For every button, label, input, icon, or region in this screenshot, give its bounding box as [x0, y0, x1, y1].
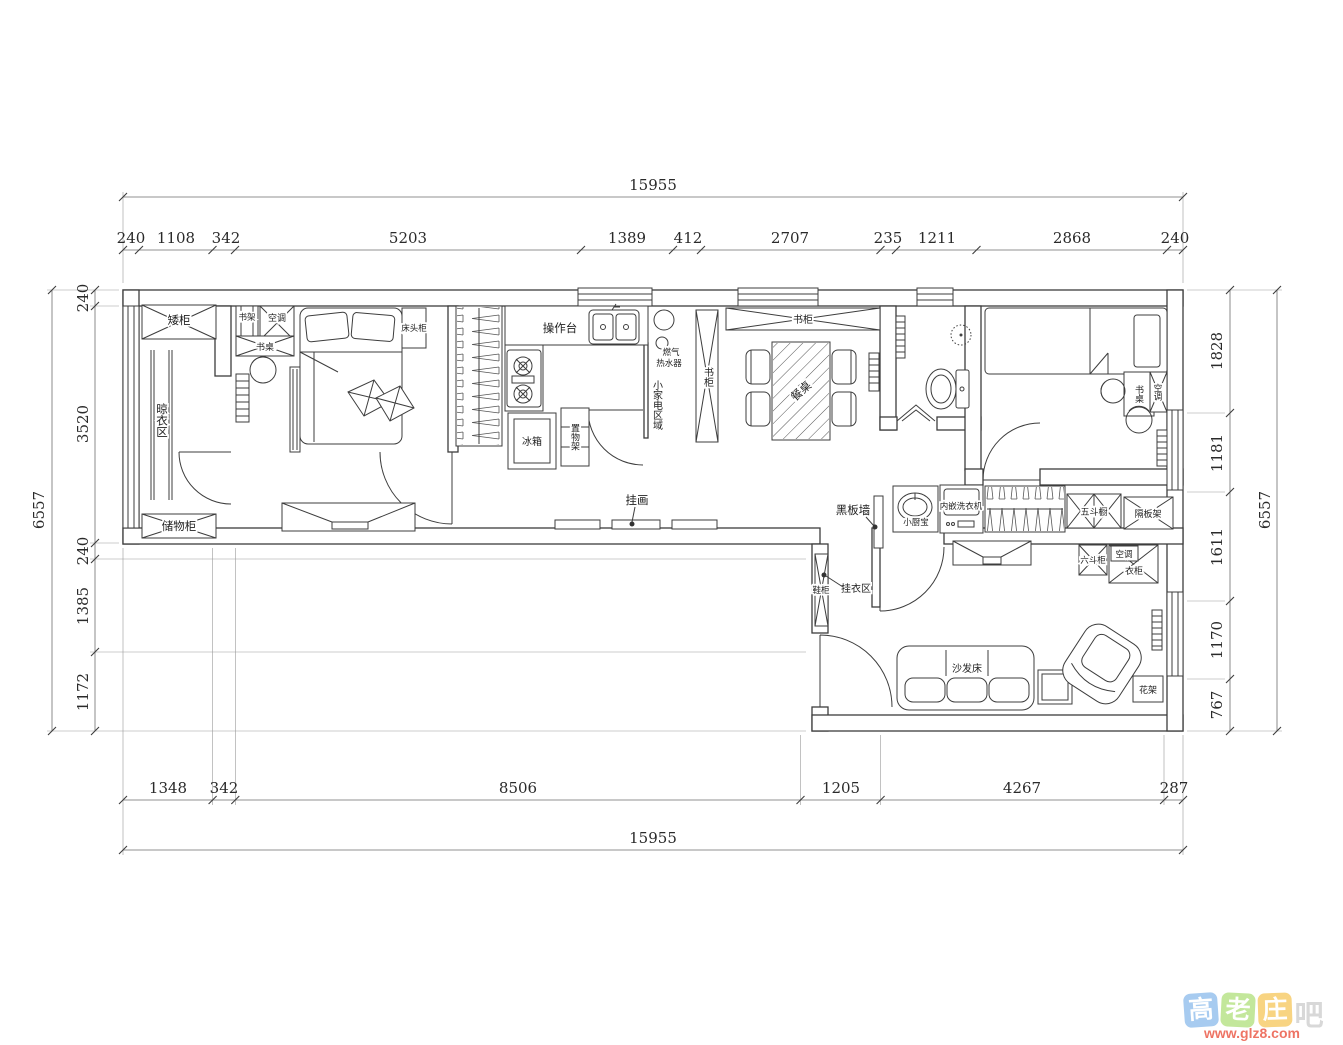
flower-stand-label: 花架 — [1139, 684, 1157, 695]
drying-area-label: 晾衣区 — [155, 402, 168, 437]
dim-top-total: 15955 — [629, 176, 677, 194]
dim-left-4: 1172 — [74, 673, 92, 711]
window-right-bedroom2 — [1167, 410, 1183, 490]
wall-bottom-right — [812, 715, 1183, 731]
small-appliance-label: 小家电区域 — [651, 380, 663, 430]
tv-stand-living — [953, 541, 1031, 565]
dim-top-3: 5203 — [389, 229, 427, 247]
ac-unit-bedroom1 — [260, 306, 294, 340]
balcony-drying-area: 矮柜 晾衣区 储物柜 — [142, 305, 216, 538]
dim-top-8: 1211 — [918, 229, 956, 247]
ac-label-living: 空调 — [1115, 549, 1132, 559]
dim-top-5: 412 — [674, 229, 703, 247]
radiator-living — [1152, 610, 1162, 650]
window-right-living — [1167, 592, 1183, 676]
sofa-bed — [897, 646, 1034, 710]
dim-right-total: 6557 — [1256, 491, 1274, 529]
dim-right-2: 1611 — [1208, 528, 1226, 566]
dim-left-3: 1385 — [74, 587, 92, 625]
door-kitchen — [588, 410, 643, 465]
wall-bedroom2-bottom-b — [1040, 469, 1183, 485]
dim-top-0: 240 — [117, 229, 146, 247]
dim-bottom-0: 1348 — [149, 779, 187, 797]
storage-cabinet-label: 储物柜 — [162, 519, 197, 533]
dim-top-9: 2868 — [1053, 229, 1091, 247]
wall-kitchen-partition — [644, 343, 648, 438]
dim-top-2: 342 — [212, 229, 241, 247]
bookcase-tall-label: 书柜 — [702, 367, 714, 388]
dim-left-1: 3520 — [74, 405, 92, 443]
radiator-dining — [869, 353, 879, 391]
radiator-bath — [896, 316, 905, 358]
watermark: 高 老 庄 吧 www.glz8.com — [1167, 993, 1337, 1041]
door-balcony — [179, 452, 231, 504]
watermark-char-1: 高 — [1182, 992, 1218, 1028]
door-bedroom2 — [983, 423, 1040, 480]
entry-corridor: 鞋柜 挂衣区 — [812, 554, 871, 626]
dim-right-3: 1170 — [1208, 621, 1226, 659]
window-top-bath — [917, 288, 953, 306]
dim-left-total: 6557 — [30, 491, 48, 529]
ac-label-bedroom1: 空调 — [268, 312, 286, 323]
window-top-dining — [738, 288, 818, 306]
wall-bath-left — [880, 306, 896, 430]
dim-top-10: 240 — [1161, 229, 1190, 247]
dim-bottom-5: 287 — [1160, 779, 1189, 797]
dim-top-4: 1389 — [608, 229, 646, 247]
partition-shelf-label: 隔板架 — [1134, 508, 1161, 519]
master-bedroom: 书架 空调 书桌 床头柜 — [236, 306, 502, 531]
dim-top-1: 1108 — [157, 229, 195, 247]
sofa-bed-label: 沙发床 — [952, 662, 982, 675]
door-bath-folding — [897, 405, 935, 421]
dim-bottom-4: 4267 — [1003, 779, 1041, 797]
dim-top-6: 2707 — [771, 229, 809, 247]
radiator-bedroom2 — [1157, 430, 1167, 466]
bookcase-top-label: 书柜 — [793, 313, 813, 326]
dim-right-1: 1181 — [1208, 434, 1226, 472]
blackboard-wall-label: 黑板墙 — [836, 503, 871, 517]
living-room: 六斗柜 空调 衣柜 沙发床 花架 — [897, 541, 1163, 710]
double-bed — [300, 308, 414, 444]
wall-balcony-stub — [215, 306, 231, 376]
ac-label-bedroom2: 空调 — [1153, 383, 1163, 402]
window-top-kitchen — [578, 288, 652, 306]
gas-water-heater — [654, 310, 674, 349]
wall-bath-bottom-a — [880, 417, 897, 430]
gas-heater-label-1: 燃气 — [662, 347, 680, 357]
shoe-cabinet-label: 鞋柜 — [812, 585, 830, 595]
floor-plan-canvas: 15955 240 1108 342 5203 1389 412 2707 23… — [0, 0, 1343, 1045]
wardrobe-master — [456, 306, 502, 446]
dim-left-0: 240 — [74, 284, 92, 313]
watermark-char-3: 庄 — [1257, 992, 1292, 1027]
wardrobe-label: 衣柜 — [1125, 565, 1143, 576]
coat-wardrobe-rail — [985, 486, 1065, 532]
blackboard-wall-board — [874, 496, 883, 548]
five-drawer-label: 五斗橱 — [1080, 506, 1107, 517]
single-bed — [985, 308, 1167, 374]
balcony-screen — [290, 367, 300, 452]
window-left-balcony — [123, 306, 139, 528]
watermark-char-2: 老 — [1220, 992, 1256, 1028]
picture-frames — [555, 520, 717, 529]
gas-stove — [507, 350, 541, 407]
desk-chair-bedroom1 — [250, 357, 276, 383]
toilet — [926, 369, 969, 409]
built-in-washer-label: 内嵌洗衣机 — [940, 501, 983, 511]
door-entry — [820, 635, 892, 707]
bathroom — [926, 325, 971, 409]
hanging-picture-label: 挂画 — [626, 493, 649, 507]
dim-bottom-1: 342 — [210, 779, 239, 797]
worktop-label: 操作台 — [543, 321, 578, 335]
mini-water-heater-label: 小厨宝 — [903, 517, 929, 527]
bedside-cabinet-label: 床头柜 — [401, 323, 427, 333]
radiator-bedroom1 — [236, 374, 249, 422]
watermark-url: www.glz8.com — [1167, 1025, 1337, 1041]
fridge-label: 冰箱 — [522, 435, 542, 448]
sink — [589, 304, 639, 344]
desk-label-bedroom2: 书桌 — [1134, 385, 1144, 404]
gas-heater-label-2: 热水器 — [656, 358, 682, 368]
door-living-room — [880, 547, 944, 611]
six-drawer-label: 六斗柜 — [1080, 555, 1106, 565]
storage-rack-label: 置物架 — [570, 423, 580, 451]
dim-left-2: 240 — [74, 537, 92, 566]
dim-right-4: 767 — [1208, 691, 1226, 720]
dim-bottom-total: 15955 — [629, 829, 677, 847]
dim-bottom-3: 1205 — [822, 779, 860, 797]
floor-plan-svg: 15955 240 1108 342 5203 1389 412 2707 23… — [0, 0, 1343, 1045]
dim-bottom-2: 8506 — [499, 779, 537, 797]
dim-top-7: 235 — [874, 229, 903, 247]
wall-bottom-left — [123, 528, 820, 544]
wall-top — [123, 290, 1183, 306]
low-cabinet-label: 矮柜 — [168, 313, 191, 327]
utility-row: 小厨宝 内嵌洗衣机 五斗橱 隔板架 — [893, 485, 1173, 533]
wall-bedroom2-bottom-a — [965, 469, 983, 485]
dim-right-0: 1828 — [1208, 332, 1226, 370]
watermark-tiles: 高 老 庄 吧 — [1167, 993, 1337, 1027]
kitchen: 操作台 冰箱 置物架 燃气 热水器 小家电区域 — [505, 304, 682, 469]
tv-stand-bedroom1 — [282, 503, 415, 531]
second-bedroom: 书桌 空调 — [985, 308, 1167, 433]
desk-label-bedroom1: 书桌 — [256, 341, 274, 352]
coat-area-label: 挂衣区 — [841, 582, 871, 595]
book-shelf-label: 书架 — [238, 312, 256, 322]
